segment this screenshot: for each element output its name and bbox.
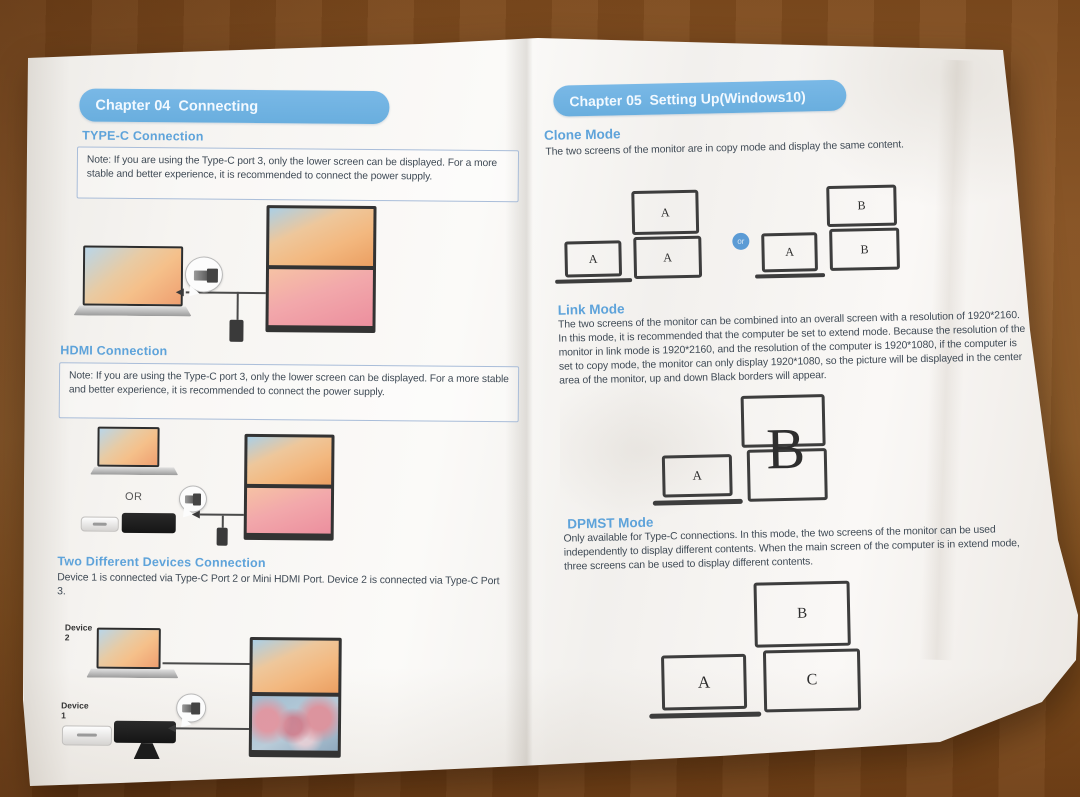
or-badge-label: or: [737, 237, 744, 246]
two-devices-heading: Two Different Devices Connection: [57, 554, 265, 570]
clone-mode-heading: Clone Mode: [544, 126, 621, 143]
dpmst-laptop: A: [661, 654, 747, 711]
cable-line: [163, 662, 250, 665]
chapter-04-title: Chapter 04 Connecting: [95, 97, 258, 114]
clone-left-monitor-bottom-label: A: [663, 250, 672, 265]
hdmi-heading: HDMI Connection: [60, 343, 167, 358]
or-label: OR: [125, 491, 143, 503]
monitor-bottom-screen: [247, 488, 331, 534]
laptop-illustration: [96, 628, 160, 670]
mac-mini-illustration: [62, 725, 112, 745]
cable-arrow-icon: [192, 510, 200, 518]
page-chapter-04: Chapter 04 Connecting TYPE-C Connection …: [21, 38, 533, 792]
laptop-illustration: [97, 427, 159, 468]
dpmst-monitor-bottom: C: [763, 648, 861, 712]
paper-sheet: Chapter 04 Connecting TYPE-C Connection …: [0, 0, 1080, 797]
link-laptop-base: [653, 499, 743, 506]
monitor-top-screen: [269, 208, 373, 266]
clone-left-laptop: A: [564, 240, 622, 277]
monitor-top-screen: [252, 640, 338, 693]
clone-left-laptop-base: [555, 278, 632, 284]
two-devices-body: Device 1 is connected via Type-C Port 2 …: [57, 571, 509, 603]
connector-tip: [194, 270, 208, 280]
clone-left-monitor-bottom: A: [633, 236, 702, 279]
link-laptop: A: [662, 454, 733, 497]
clone-left-monitor-top-label: A: [661, 205, 670, 220]
manual-paper: Chapter 04 Connecting TYPE-C Connection …: [0, 0, 1080, 797]
dual-monitor-illustration: [265, 205, 376, 333]
connector-body: [193, 493, 201, 505]
or-badge: or: [732, 233, 749, 250]
console-stand: [134, 743, 160, 759]
dual-monitor-illustration: [249, 637, 342, 758]
page-chapter-05: Chapter 05 Setting Up(Windows10) Clone M…: [540, 26, 1034, 796]
laptop-base: [90, 467, 178, 476]
laptop-base: [74, 305, 192, 316]
clone-right-monitor-top-label: B: [857, 198, 865, 213]
device1-label: Device 1: [61, 700, 89, 720]
dpmst-mode-body: Only available for Type-C connections. I…: [563, 523, 1032, 575]
link-mode-body: The two screens of the monitor can be co…: [558, 309, 1027, 388]
chapter-05-title: Chapter 05 Setting Up(Windows10): [569, 88, 806, 109]
monitor-top-screen: [247, 437, 331, 485]
clone-right-monitor-top: B: [826, 185, 897, 227]
link-laptop-label: A: [692, 468, 702, 484]
typec-heading: TYPE-C Connection: [82, 128, 204, 143]
clone-left-monitor-top: A: [631, 190, 699, 235]
laptop-illustration: [83, 245, 184, 306]
laptop-base: [86, 669, 178, 679]
usb-plug-icon: [217, 528, 228, 546]
hdmi-note-text: Note: If you are using the Type-C port 3…: [69, 370, 509, 398]
link-monitor-label: B: [760, 418, 811, 479]
typec-note-box: Note: If you are using the Type-C port 3…: [77, 146, 519, 202]
monitor-bottom-screen-flowers: [252, 696, 338, 751]
dpmst-laptop-label: A: [698, 672, 711, 692]
cable-arrow-icon: [176, 288, 184, 296]
dpmst-laptop-base: [649, 712, 761, 719]
connector-body: [191, 702, 200, 714]
cable-line: [237, 292, 239, 320]
dual-monitor-illustration: [244, 434, 335, 541]
dpmst-monitor-bottom-label: C: [807, 671, 818, 689]
dpmst-monitor-top: B: [753, 581, 850, 648]
dpmst-mode-heading: DPMST Mode: [567, 515, 654, 532]
usb-plug-icon: [229, 320, 243, 342]
typec-note-text: Note: If you are using the Type-C port 3…: [87, 155, 497, 183]
clone-right-laptop-label: A: [785, 245, 794, 260]
monitor-bottom-screen: [269, 269, 373, 326]
chapter-04-header: Chapter 04 Connecting: [79, 88, 389, 124]
hdmi-note-box: Note: If you are using the Type-C port 3…: [59, 362, 519, 422]
dpmst-monitor-top-label: B: [797, 606, 807, 623]
cable-line: [222, 516, 224, 528]
clone-left-laptop-label: A: [589, 251, 598, 266]
clone-right-monitor-bottom: B: [829, 228, 900, 271]
clone-right-laptop: A: [761, 232, 818, 272]
link-mode-heading: Link Mode: [558, 301, 625, 317]
clone-right-laptop-base: [755, 273, 825, 278]
cable-arrow-icon: [168, 724, 176, 732]
game-console-illustration: [114, 721, 176, 744]
game-console-illustration: [122, 513, 176, 533]
mac-mini-illustration: [81, 516, 119, 531]
clone-right-monitor-bottom-label: B: [860, 242, 868, 257]
chapter-05-header: Chapter 05 Setting Up(Windows10): [553, 80, 847, 117]
device2-label: Device 2: [65, 622, 93, 642]
connector-body: [207, 269, 218, 283]
